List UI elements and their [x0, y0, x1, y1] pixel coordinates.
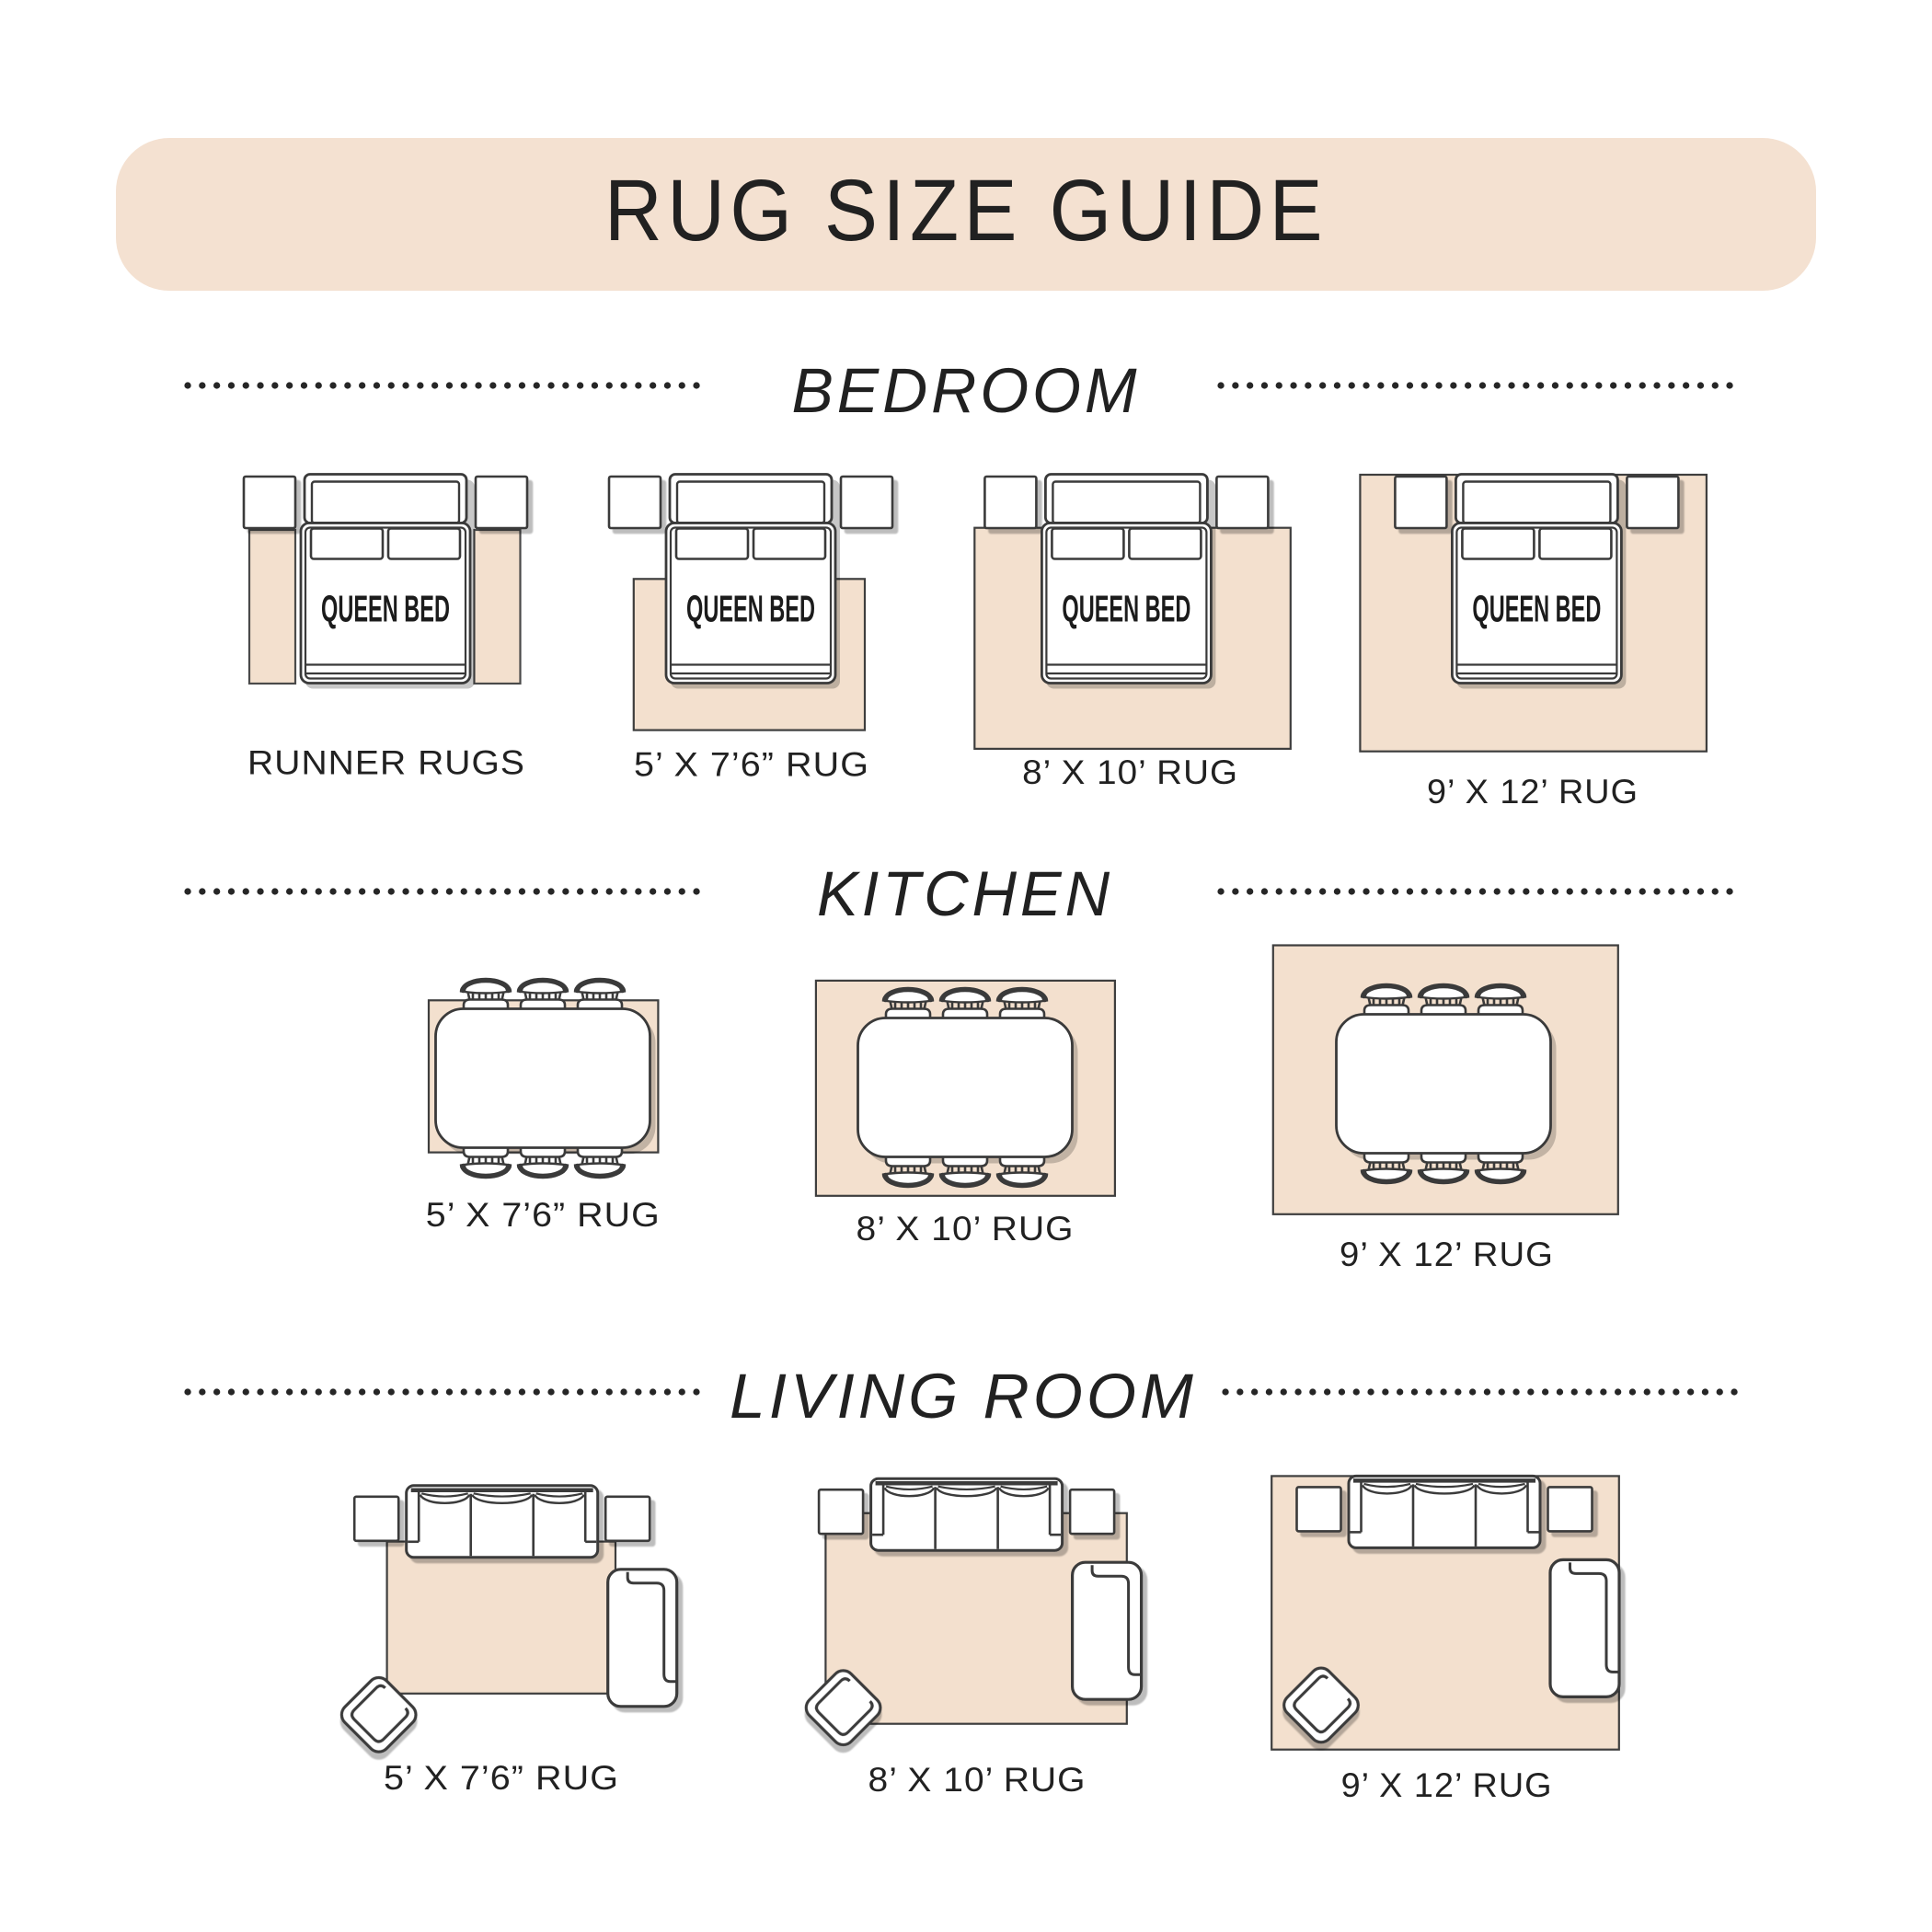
svg-text:RUG SIZE GUIDE: RUG SIZE GUIDE [604, 162, 1328, 259]
svg-text:5’ X 7’6” RUG: 5’ X 7’6” RUG [384, 1759, 619, 1797]
svg-text:8’ X 10’ RUG: 8’ X 10’ RUG [857, 1210, 1075, 1248]
svg-text:5’ X 7’6” RUG: 5’ X 7’6” RUG [426, 1196, 661, 1234]
svg-text:9’ X 12’ RUG: 9’ X 12’ RUG [1340, 1236, 1554, 1273]
svg-text:8’ X 10’ RUG: 8’ X 10’ RUG [1022, 753, 1238, 791]
svg-text:QUEEN BED: QUEEN BED [1062, 588, 1190, 630]
svg-text:KITCHEN: KITCHEN [817, 858, 1113, 929]
svg-text:BEDROOM: BEDROOM [792, 355, 1141, 426]
svg-text:5’ X 7’6” RUG: 5’ X 7’6” RUG [634, 746, 869, 784]
svg-text:9’ X 12’ RUG: 9’ X 12’ RUG [1427, 773, 1639, 811]
svg-text:8’ X 10’ RUG: 8’ X 10’ RUG [868, 1761, 1087, 1799]
svg-text:QUEEN BED: QUEEN BED [686, 588, 815, 630]
svg-text:LIVING ROOM: LIVING ROOM [730, 1361, 1197, 1432]
svg-text:9’ X 12’ RUG: 9’ X 12’ RUG [1341, 1766, 1553, 1804]
svg-text:QUEEN BED: QUEEN BED [321, 588, 450, 630]
svg-text:RUNNER RUGS: RUNNER RUGS [247, 744, 525, 782]
svg-text:QUEEN BED: QUEEN BED [1472, 588, 1601, 630]
